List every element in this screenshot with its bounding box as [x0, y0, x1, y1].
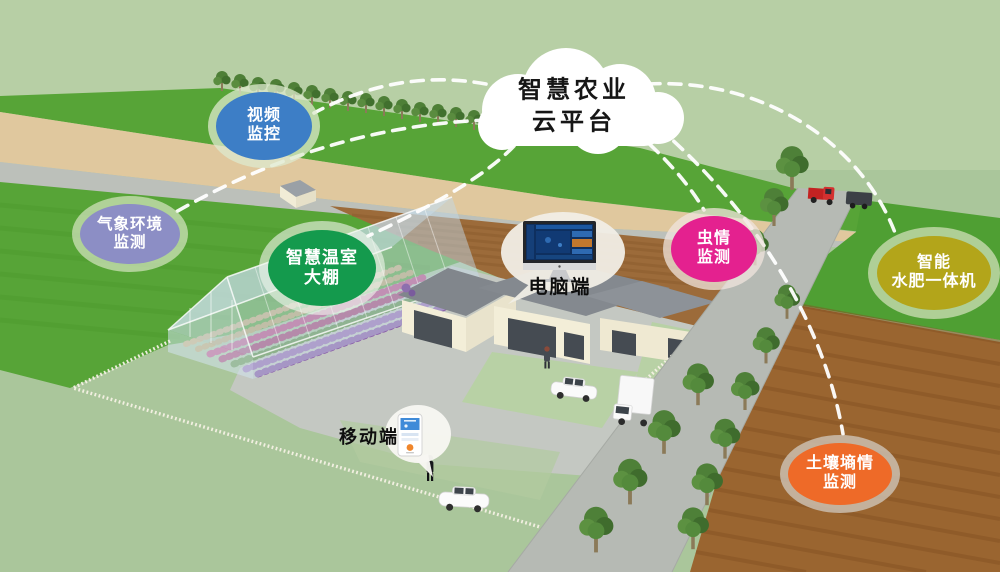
node-label-line: 监测 [697, 249, 731, 268]
node-label-line: 监控 [247, 126, 281, 145]
cloud-label-line-1: 智慧农业 [518, 75, 630, 107]
node-label-line: 监测 [113, 234, 146, 252]
node-label-line: 监测 [823, 474, 857, 493]
node-label-line: 水肥一体机 [891, 273, 976, 292]
node-label-line: 智能 [917, 254, 951, 273]
cloud-label-line-2: 云平台 [518, 107, 630, 139]
pc-terminal-label: 电脑端 [528, 272, 591, 299]
node-weather-environment-monitoring[interactable]: 气象环境 监测 [80, 204, 180, 264]
smart-agriculture-platform-diagram: 智慧农业 云平台 视频 监控 气象环境 监测 智慧温室 大棚 虫情 监测 智能 … [0, 0, 1000, 572]
arc-to-video-monitoring [314, 80, 486, 113]
node-label-line: 土壤墒情 [806, 455, 874, 474]
node-smart-greenhouse[interactable]: 智慧温室 大棚 [268, 230, 376, 306]
node-smart-fertigation-machine[interactable]: 智能 水肥一体机 [877, 236, 991, 310]
mobile-terminal-label: 移动端 [339, 423, 399, 449]
node-label-line: 气象环境 [97, 216, 163, 234]
arc-to-soil-monitoring [642, 114, 843, 434]
node-label-line: 视频 [247, 107, 281, 126]
node-soil-moisture-monitoring[interactable]: 土壤墒情 监测 [788, 443, 892, 505]
node-video-monitoring[interactable]: 视频 监控 [216, 92, 312, 160]
node-label-line: 虫情 [697, 230, 731, 249]
node-label-line: 智慧温室 [286, 248, 358, 268]
smartphone-icon [398, 414, 422, 456]
arc-to-fertigation-machine [648, 84, 897, 238]
cloud-platform-node[interactable]: 智慧农业 云平台 [518, 75, 630, 140]
node-label-line: 大棚 [304, 268, 340, 288]
arc-to-smart-greenhouse [368, 146, 514, 236]
node-pest-monitoring[interactable]: 虫情 监测 [671, 216, 757, 282]
